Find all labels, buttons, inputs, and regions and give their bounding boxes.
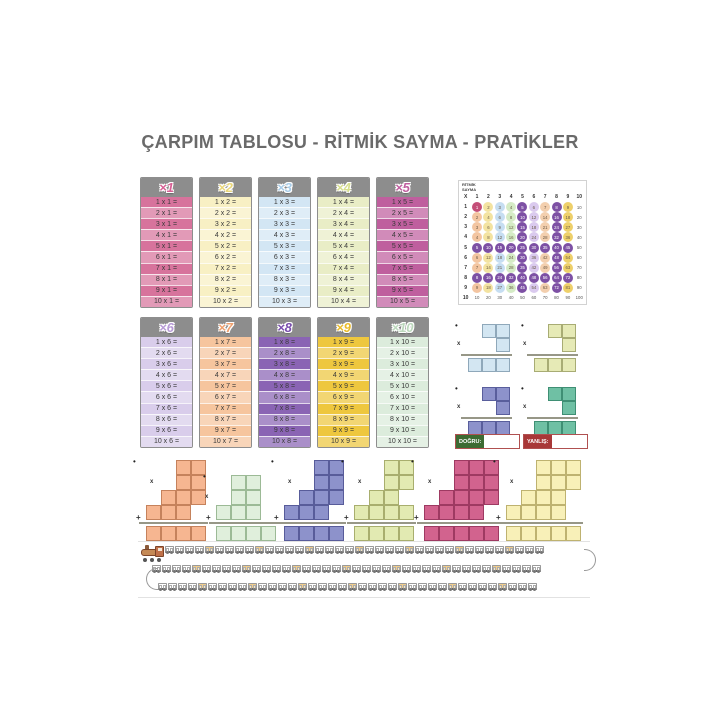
shape-cell	[246, 475, 261, 490]
wagon-number-box	[403, 585, 406, 589]
shape-cell	[468, 358, 482, 372]
shape-cell	[424, 505, 439, 520]
train-wagon	[345, 546, 354, 553]
wagon-number-box	[180, 548, 183, 552]
grid-cell: 30	[574, 222, 585, 232]
wagon-number-box	[419, 585, 422, 589]
train-wagon	[312, 565, 321, 572]
grid-value: 27	[495, 283, 505, 293]
ground-line	[347, 522, 416, 524]
shape-cell	[191, 526, 206, 541]
wagon-number-box	[437, 567, 440, 571]
train-wagon	[495, 546, 504, 553]
grid-cell: 42	[540, 253, 551, 263]
wagon-number-box	[273, 585, 276, 589]
shape-cell	[384, 505, 399, 520]
train-wagon	[302, 565, 311, 572]
train-wagon	[428, 583, 437, 590]
wagon-number-box	[313, 567, 316, 571]
grid-cell: 20	[574, 212, 585, 222]
train-wagon	[202, 565, 211, 572]
ground-line	[139, 522, 208, 524]
grid-cell: 20	[483, 293, 494, 303]
grid-value: 8	[552, 202, 562, 212]
train-wagon	[515, 546, 524, 553]
wagon-number-box	[357, 567, 360, 571]
train-wagon	[378, 583, 387, 590]
train-wagon	[412, 565, 421, 572]
wagon-number-box	[300, 548, 303, 552]
grid-value: 60	[529, 293, 539, 303]
grid-value: 45	[517, 283, 527, 293]
grid-row-header: 4	[460, 232, 471, 242]
grid-row: 112345678910	[460, 202, 585, 212]
wagon-number-box	[226, 548, 229, 552]
plus-marker: +	[136, 513, 141, 522]
worksheet: ÇARPIM TABLOSU - RİTMİK SAYMA - PRATİKLE…	[0, 0, 720, 720]
card-factor-label: ×1	[159, 180, 174, 195]
wagon-number-box	[510, 548, 513, 552]
grid-value: 4	[472, 232, 482, 242]
wagon-number-box	[256, 548, 259, 552]
wagon-number-box	[303, 567, 306, 571]
grid-cell: 35	[540, 242, 551, 252]
wagon-number-box	[486, 548, 489, 552]
equation-row: 7 x 9 =	[318, 403, 369, 414]
shape-cell	[454, 526, 469, 541]
shape-cell	[482, 421, 496, 435]
train-wagon	[462, 565, 471, 572]
wagon-number-box	[177, 567, 180, 571]
wagon-number-box	[279, 585, 282, 589]
equation-row: 9 x 3 =	[259, 285, 310, 296]
train-wagon	[488, 583, 497, 590]
equation-row: 6 x 4 =	[318, 251, 369, 262]
train-wagon	[265, 546, 274, 553]
wagon-number-box	[367, 567, 370, 571]
shape-cell	[482, 358, 496, 372]
wagon-number-box	[453, 585, 456, 589]
x-marker: x	[523, 341, 526, 347]
grid-col-header: 4	[505, 192, 516, 202]
train-wagon	[198, 583, 207, 590]
wagon-number-box	[477, 567, 480, 571]
equation-row: 2 x 4 =	[318, 207, 369, 218]
wagon-number-box	[493, 585, 496, 589]
grid-cell: 40	[574, 232, 585, 242]
track-curve-left	[146, 568, 158, 590]
train-wagon	[218, 583, 227, 590]
shape-cell	[484, 460, 499, 475]
wrong-answer-group: YANLIŞ:	[523, 434, 588, 449]
shape-cell	[314, 505, 329, 520]
grid-cell: 4	[483, 212, 494, 222]
equation-row: 9 x 10 =	[377, 425, 428, 436]
grid-cell: 36	[562, 232, 573, 242]
grid-cell: 50	[517, 293, 528, 303]
wagon-number-box	[219, 585, 222, 589]
wagon-number-box	[253, 567, 256, 571]
shape-cell	[469, 526, 484, 541]
shape-cell	[536, 490, 551, 505]
grid-cell: 30	[517, 253, 528, 263]
grid-cell: 63	[540, 283, 551, 293]
bullet-marker: •	[271, 460, 274, 464]
wagon-number-box	[166, 548, 169, 552]
grid-value: 10	[517, 212, 527, 222]
grid-cell: 35	[517, 263, 528, 273]
shape-cell	[536, 526, 551, 541]
train-wagon	[305, 546, 314, 553]
equation-row: 4 x 4 =	[318, 229, 369, 240]
equation-row: 6 x 3 =	[259, 251, 310, 262]
shape-cell	[231, 526, 246, 541]
staircase-shape-4: •x+	[354, 460, 414, 543]
wagon-number-box	[329, 585, 332, 589]
grid-value: 54	[529, 283, 539, 293]
train-wagon	[355, 546, 364, 553]
practice-shape-2: •x	[534, 324, 576, 374]
grid-value: 18	[495, 253, 505, 263]
equation-row: 9 x 5 =	[377, 285, 428, 296]
wagon-number-box	[290, 548, 293, 552]
wagon-number-box	[190, 548, 193, 552]
grid-cell: 32	[505, 273, 516, 283]
bullet-marker: •	[411, 460, 414, 464]
practice-shape-4: •x	[534, 387, 576, 437]
equation-row: 4 x 2 =	[200, 229, 251, 240]
wagon-number-box	[386, 548, 389, 552]
wagon-number-box	[246, 548, 249, 552]
shape-cell	[439, 490, 454, 505]
plus-marker: +	[414, 513, 419, 522]
shape-cell	[146, 526, 161, 541]
train-wagon	[225, 546, 234, 553]
wagon-number-box	[250, 548, 253, 552]
bullet-marker: •	[455, 387, 458, 391]
grid-value: 80	[552, 293, 562, 303]
equation-row: 1 x 8 =	[259, 337, 310, 347]
wagon-number-box	[413, 585, 416, 589]
wagon-number-box	[236, 548, 239, 552]
wagon-number-box	[393, 567, 396, 571]
train-wagon	[215, 546, 224, 553]
x-marker: x	[205, 494, 208, 500]
grid-cell: 56	[540, 273, 551, 283]
grid-cell: 60	[528, 293, 539, 303]
wagon-number-box	[383, 567, 386, 571]
equation-row: 2 x 7 =	[200, 347, 251, 358]
wagon-number-box	[213, 585, 216, 589]
wagon-number-box	[337, 567, 340, 571]
grid-value: 56	[540, 273, 550, 283]
equation-row: 6 x 5 =	[377, 251, 428, 262]
wagon-number-box	[213, 567, 216, 571]
equation-row: 2 x 10 =	[377, 347, 428, 358]
shape-cell	[354, 526, 369, 541]
shape-cell	[314, 490, 329, 505]
grid-value: 12	[495, 232, 505, 242]
grid-row-header: 1	[460, 202, 471, 212]
grid-value: 8	[483, 232, 493, 242]
shape-cell	[469, 490, 484, 505]
equation-row: 4 x 9 =	[318, 369, 369, 380]
grid-value: 25	[517, 243, 527, 253]
card-header: ×1	[141, 178, 192, 197]
train-wagon	[288, 583, 297, 590]
grid-value: 28	[540, 232, 550, 242]
grid-cell: 80	[551, 293, 562, 303]
shape-cell	[424, 526, 439, 541]
wagon-number-box	[487, 567, 490, 571]
wagon-number-box	[209, 585, 212, 589]
equation-row: 8 x 10 =	[377, 414, 428, 425]
wagon-number-box	[223, 585, 226, 589]
wagon-number-box	[297, 567, 300, 571]
grid-value: 40	[552, 243, 562, 253]
grid-value: 15	[517, 222, 527, 232]
shape-cell	[454, 475, 469, 490]
wagon-number-box	[299, 585, 302, 589]
train-wagon	[268, 583, 277, 590]
grid-cell: 2	[483, 202, 494, 212]
grid-value: 70	[540, 293, 550, 303]
grid-col-header: 10	[574, 192, 585, 202]
train-wagon	[195, 546, 204, 553]
shape-cell	[176, 475, 191, 490]
equation-row: 3 x 5 =	[377, 218, 428, 229]
grid-row: 55101520253035404550	[460, 242, 585, 252]
grid-value: 35	[517, 263, 527, 273]
wagon-number-box	[159, 585, 162, 589]
wagon-number-box	[176, 548, 179, 552]
grid-cell: 60	[574, 253, 585, 263]
wagon-number-box	[526, 548, 529, 552]
wagon-number-box	[343, 585, 346, 589]
grid-value: 28	[506, 263, 516, 273]
wagon-number-box	[239, 585, 242, 589]
locomotive-wheels	[143, 558, 147, 562]
wagon-number-box	[407, 567, 410, 571]
shape-cell	[161, 505, 176, 520]
wagon-number-box	[200, 548, 203, 552]
card-body: 1 x 7 =2 x 7 =3 x 7 =4 x 7 =5 x 7 =6 x 7…	[200, 337, 251, 447]
grid-cell: 28	[540, 232, 551, 242]
staircase-shape-2: •x+	[216, 475, 276, 543]
multiplication-card-x3: ×31 x 3 =2 x 3 =3 x 3 =4 x 3 =5 x 3 =6 x…	[258, 177, 311, 308]
shape-cell	[146, 505, 161, 520]
wagon-number-box	[173, 585, 176, 589]
shape-cell	[354, 505, 369, 520]
train-wagon	[298, 583, 307, 590]
equation-row: 10 x 5 =	[377, 296, 428, 307]
shape-cell	[551, 526, 566, 541]
grid-value: 18	[563, 212, 573, 222]
equation-row: 10 x 2 =	[200, 296, 251, 307]
train-wagon	[422, 565, 431, 572]
wagon-number-box	[233, 567, 236, 571]
x-marker: x	[358, 479, 361, 485]
card-body: 1 x 9 =2 x 9 =3 x 9 =4 x 9 =5 x 9 =6 x 9…	[318, 337, 369, 447]
wagon-number-box	[273, 567, 276, 571]
equation-row: 2 x 6 =	[141, 347, 192, 358]
card-header: ×2	[200, 178, 251, 197]
grid-cell: 15	[517, 222, 528, 232]
bullet-marker: •	[493, 460, 496, 464]
card-body: 1 x 8 =2 x 8 =3 x 8 =4 x 8 =5 x 8 =6 x 8…	[259, 337, 310, 447]
shape-cell	[369, 505, 384, 520]
wagon-number-box	[323, 585, 326, 589]
equation-row: 6 x 8 =	[259, 391, 310, 402]
grid-col-header: 2	[483, 192, 494, 202]
grid-cell: 6	[494, 212, 505, 222]
grid-value: 2	[483, 202, 493, 212]
wagon-number-box	[356, 548, 359, 552]
grid-value: 8	[506, 212, 516, 222]
wagon-number-box	[323, 567, 326, 571]
multiplication-card-x7: ×71 x 7 =2 x 7 =3 x 7 =4 x 7 =5 x 7 =6 x…	[199, 317, 252, 448]
train-wagon	[222, 565, 231, 572]
wagon-number-box	[293, 567, 296, 571]
grid-cell: 24	[494, 273, 505, 283]
shape-cell	[548, 358, 562, 372]
x-marker: x	[510, 479, 513, 485]
card-factor-label: ×9	[336, 320, 351, 335]
card-header: ×7	[200, 318, 251, 337]
equation-row: 8 x 2 =	[200, 274, 251, 285]
equation-row: 1 x 4 =	[318, 197, 369, 207]
ground-line	[209, 522, 278, 524]
wagon-number-box	[303, 585, 306, 589]
wagon-number-box	[413, 567, 416, 571]
wagon-number-box	[506, 548, 509, 552]
multiplication-card-x2: ×21 x 2 =2 x 2 =3 x 2 =4 x 2 =5 x 2 =6 x…	[199, 177, 252, 308]
train-wagon	[338, 583, 347, 590]
grid-value: 15	[495, 243, 505, 253]
wagon-number-box	[317, 567, 320, 571]
grid-value: 20	[483, 293, 493, 303]
bullet-marker: •	[203, 475, 206, 479]
card-body: 1 x 10 =2 x 10 =3 x 10 =4 x 10 =5 x 10 =…	[377, 337, 428, 447]
x-marker: x	[288, 479, 291, 485]
card-header: ×9	[318, 318, 369, 337]
equation-row: 8 x 4 =	[318, 274, 369, 285]
grid-value: 16	[483, 273, 493, 283]
wagon-number-box	[217, 567, 220, 571]
grid-cell: 6	[471, 253, 482, 263]
grid-row-header: 8	[460, 273, 471, 283]
wagon-number-box	[403, 567, 406, 571]
shape-cell	[439, 505, 454, 520]
train-wagon	[358, 583, 367, 590]
equation-row: 1 x 3 =	[259, 197, 310, 207]
grid-row-header: 10	[460, 293, 471, 303]
wagon-number-box	[523, 585, 526, 589]
equation-row: 3 x 3 =	[259, 218, 310, 229]
equation-row: 8 x 9 =	[318, 414, 369, 425]
wagon-number-box	[426, 548, 429, 552]
grid-cell: 90	[562, 293, 573, 303]
grid-col-header: 5	[517, 192, 528, 202]
grid-cell: 18	[528, 222, 539, 232]
train-wagon	[442, 565, 451, 572]
wagon-number-box	[266, 548, 269, 552]
grid-cell: 20	[517, 232, 528, 242]
wagon-number-box	[257, 567, 260, 571]
wagon-number-box	[339, 585, 342, 589]
train-wagon	[255, 546, 264, 553]
page-title: ÇARPIM TABLOSU - RİTMİK SAYMA - PRATİKLE…	[130, 132, 590, 153]
grid-value: 6	[495, 212, 505, 222]
train-wagon	[278, 583, 287, 590]
train-wagon	[472, 565, 481, 572]
grid-value: 40	[574, 232, 584, 242]
train-wagon	[162, 565, 171, 572]
equation-row: 8 x 3 =	[259, 274, 310, 285]
train-wagon	[468, 583, 477, 590]
grid-value: 3	[495, 202, 505, 212]
grid-value: 6	[483, 222, 493, 232]
train-wagon	[292, 565, 301, 572]
train-wagon	[335, 546, 344, 553]
wagon-number-box	[220, 548, 223, 552]
ground-line	[461, 354, 512, 356]
grid-value: 24	[552, 222, 562, 232]
equation-row: 6 x 7 =	[200, 391, 251, 402]
wagon-number-box	[237, 567, 240, 571]
shape-cell	[506, 526, 521, 541]
multiplication-card-x6: ×61 x 6 =2 x 6 =3 x 6 =4 x 6 =5 x 6 =6 x…	[140, 317, 193, 448]
shape-cell	[496, 358, 510, 372]
card-factor-label: ×5	[395, 180, 410, 195]
equation-row: 4 x 8 =	[259, 369, 310, 380]
train-wagon	[325, 546, 334, 553]
grid-row-header: 7	[460, 263, 471, 273]
correct-answer-group: DOĞRU:	[455, 434, 520, 449]
grid-cell: 50	[574, 242, 585, 252]
shape-cell	[534, 358, 548, 372]
wagon-number-box	[259, 585, 262, 589]
grid-row: 66121824303642485460	[460, 253, 585, 263]
shape-cell	[566, 475, 581, 490]
train-wagon	[395, 546, 404, 553]
wagon-number-box	[286, 548, 289, 552]
wagon-number-box	[270, 548, 273, 552]
train-wagon	[448, 583, 457, 590]
train-wagon	[332, 565, 341, 572]
wagon-number-box	[377, 567, 380, 571]
wagon-number-box	[353, 567, 356, 571]
wagon-number-box	[277, 567, 280, 571]
wagon-number-box	[533, 567, 536, 571]
card-body: 1 x 3 =2 x 3 =3 x 3 =4 x 3 =5 x 3 =6 x 3…	[259, 197, 310, 307]
shape-cell	[469, 460, 484, 475]
equation-row: 7 x 2 =	[200, 263, 251, 274]
grid-col-header: 6	[528, 192, 539, 202]
shape-cell	[191, 490, 206, 505]
shape-cell	[231, 505, 246, 520]
locomotive-window	[158, 548, 162, 551]
grid-value: 2	[472, 212, 482, 222]
equation-row: 10 x 3 =	[259, 296, 310, 307]
grid-col-header: 1	[471, 192, 482, 202]
grid-value: 54	[563, 253, 573, 263]
train-wagon	[315, 546, 324, 553]
grid-cell: 36	[505, 283, 516, 293]
wagon-number-box	[529, 585, 532, 589]
shape-cell	[176, 505, 191, 520]
wagon-number-box	[319, 585, 322, 589]
